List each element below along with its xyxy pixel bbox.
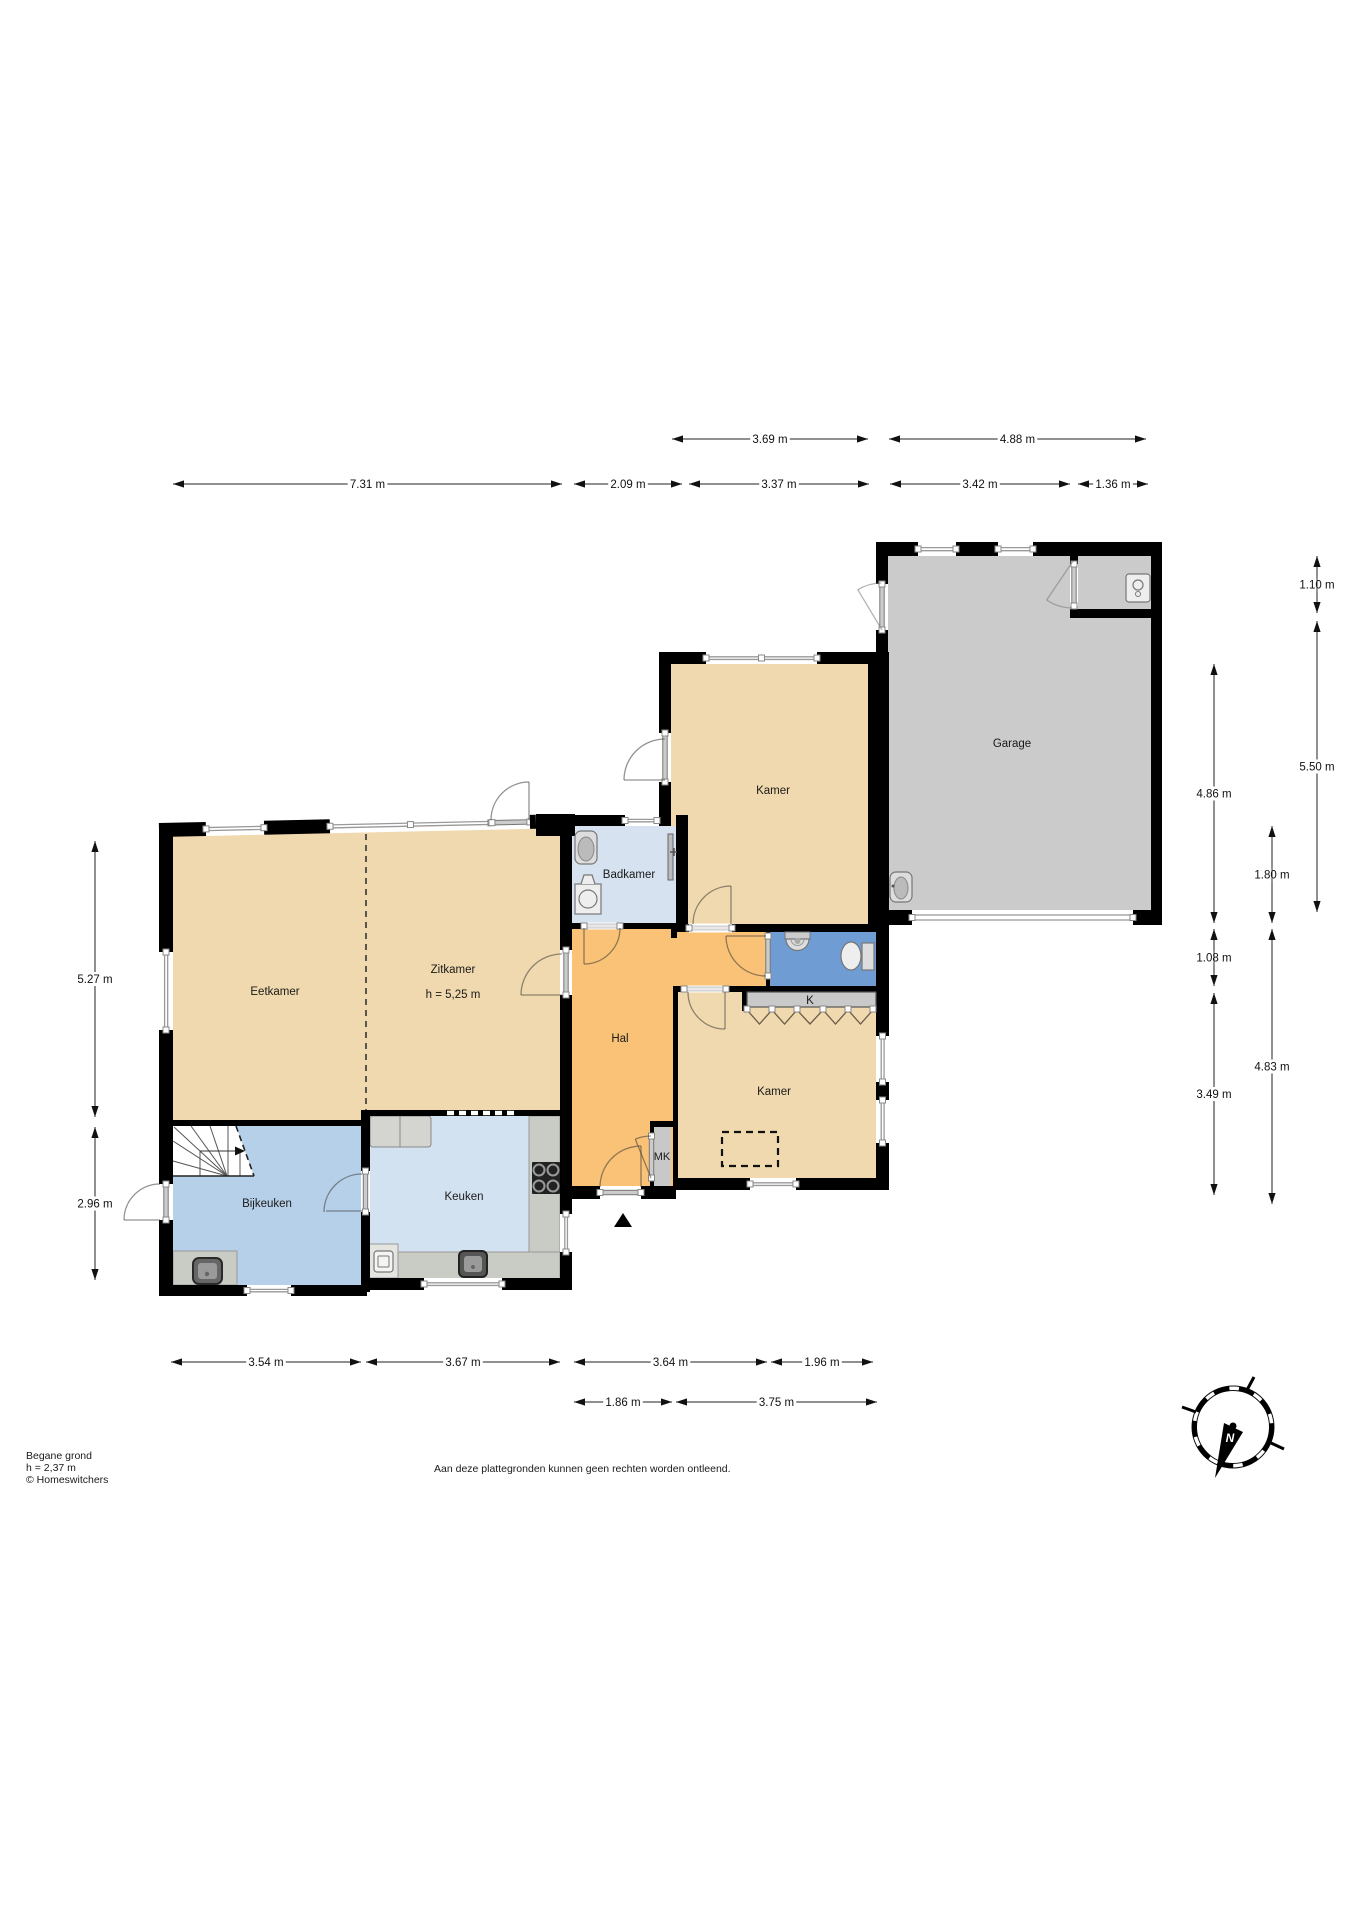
svg-text:Keuken: Keuken	[444, 1191, 483, 1203]
svg-text:3.75 m: 3.75 m	[759, 1397, 794, 1409]
svg-text:2.09 m: 2.09 m	[610, 479, 645, 491]
svg-text:5.50 m: 5.50 m	[1299, 762, 1334, 774]
svg-text:1.10 m: 1.10 m	[1299, 580, 1334, 592]
svg-text:Kamer: Kamer	[756, 785, 790, 797]
svg-text:3.42 m: 3.42 m	[962, 479, 997, 491]
svg-text:Begane grond: Begane grond	[26, 1450, 92, 1462]
svg-text:MK: MK	[654, 1151, 671, 1163]
svg-text:1.36 m: 1.36 m	[1095, 479, 1130, 491]
svg-text:3.37 m: 3.37 m	[761, 479, 796, 491]
svg-text:3.67 m: 3.67 m	[445, 1357, 480, 1369]
svg-text:1.86 m: 1.86 m	[605, 1397, 640, 1409]
svg-text:2.96 m: 2.96 m	[77, 1199, 112, 1211]
svg-text:© Homeswitchers: © Homeswitchers	[26, 1474, 108, 1486]
svg-text:3.69 m: 3.69 m	[752, 434, 787, 446]
svg-text:Bijkeuken: Bijkeuken	[242, 1198, 292, 1210]
svg-text:5.27 m: 5.27 m	[77, 974, 112, 986]
svg-text:3.49 m: 3.49 m	[1196, 1089, 1231, 1101]
svg-text:4.83 m: 4.83 m	[1254, 1062, 1289, 1074]
svg-text:Zitkamer: Zitkamer	[431, 964, 476, 976]
svg-text:3.54 m: 3.54 m	[248, 1357, 283, 1369]
svg-text:1.08 m: 1.08 m	[1196, 953, 1231, 965]
svg-text:1.80 m: 1.80 m	[1254, 870, 1289, 882]
svg-text:h = 5,25 m: h = 5,25 m	[426, 989, 481, 1001]
svg-text:Aan deze plattegronden kunnen: Aan deze plattegronden kunnen geen recht…	[434, 1463, 731, 1475]
svg-text:1.96 m: 1.96 m	[804, 1357, 839, 1369]
svg-text:Hal: Hal	[611, 1033, 628, 1045]
svg-text:Badkamer: Badkamer	[603, 869, 656, 881]
svg-text:3.64 m: 3.64 m	[653, 1357, 688, 1369]
svg-text:4.88 m: 4.88 m	[1000, 434, 1035, 446]
svg-text:7.31 m: 7.31 m	[350, 479, 385, 491]
svg-text:K: K	[806, 995, 814, 1007]
svg-text:N: N	[1226, 1431, 1235, 1445]
svg-text:4.86 m: 4.86 m	[1196, 789, 1231, 801]
svg-text:Eetkamer: Eetkamer	[250, 986, 299, 998]
svg-text:Kamer: Kamer	[757, 1086, 791, 1098]
svg-text:Garage: Garage	[993, 738, 1031, 750]
svg-text:h = 2,37 m: h = 2,37 m	[26, 1462, 76, 1474]
